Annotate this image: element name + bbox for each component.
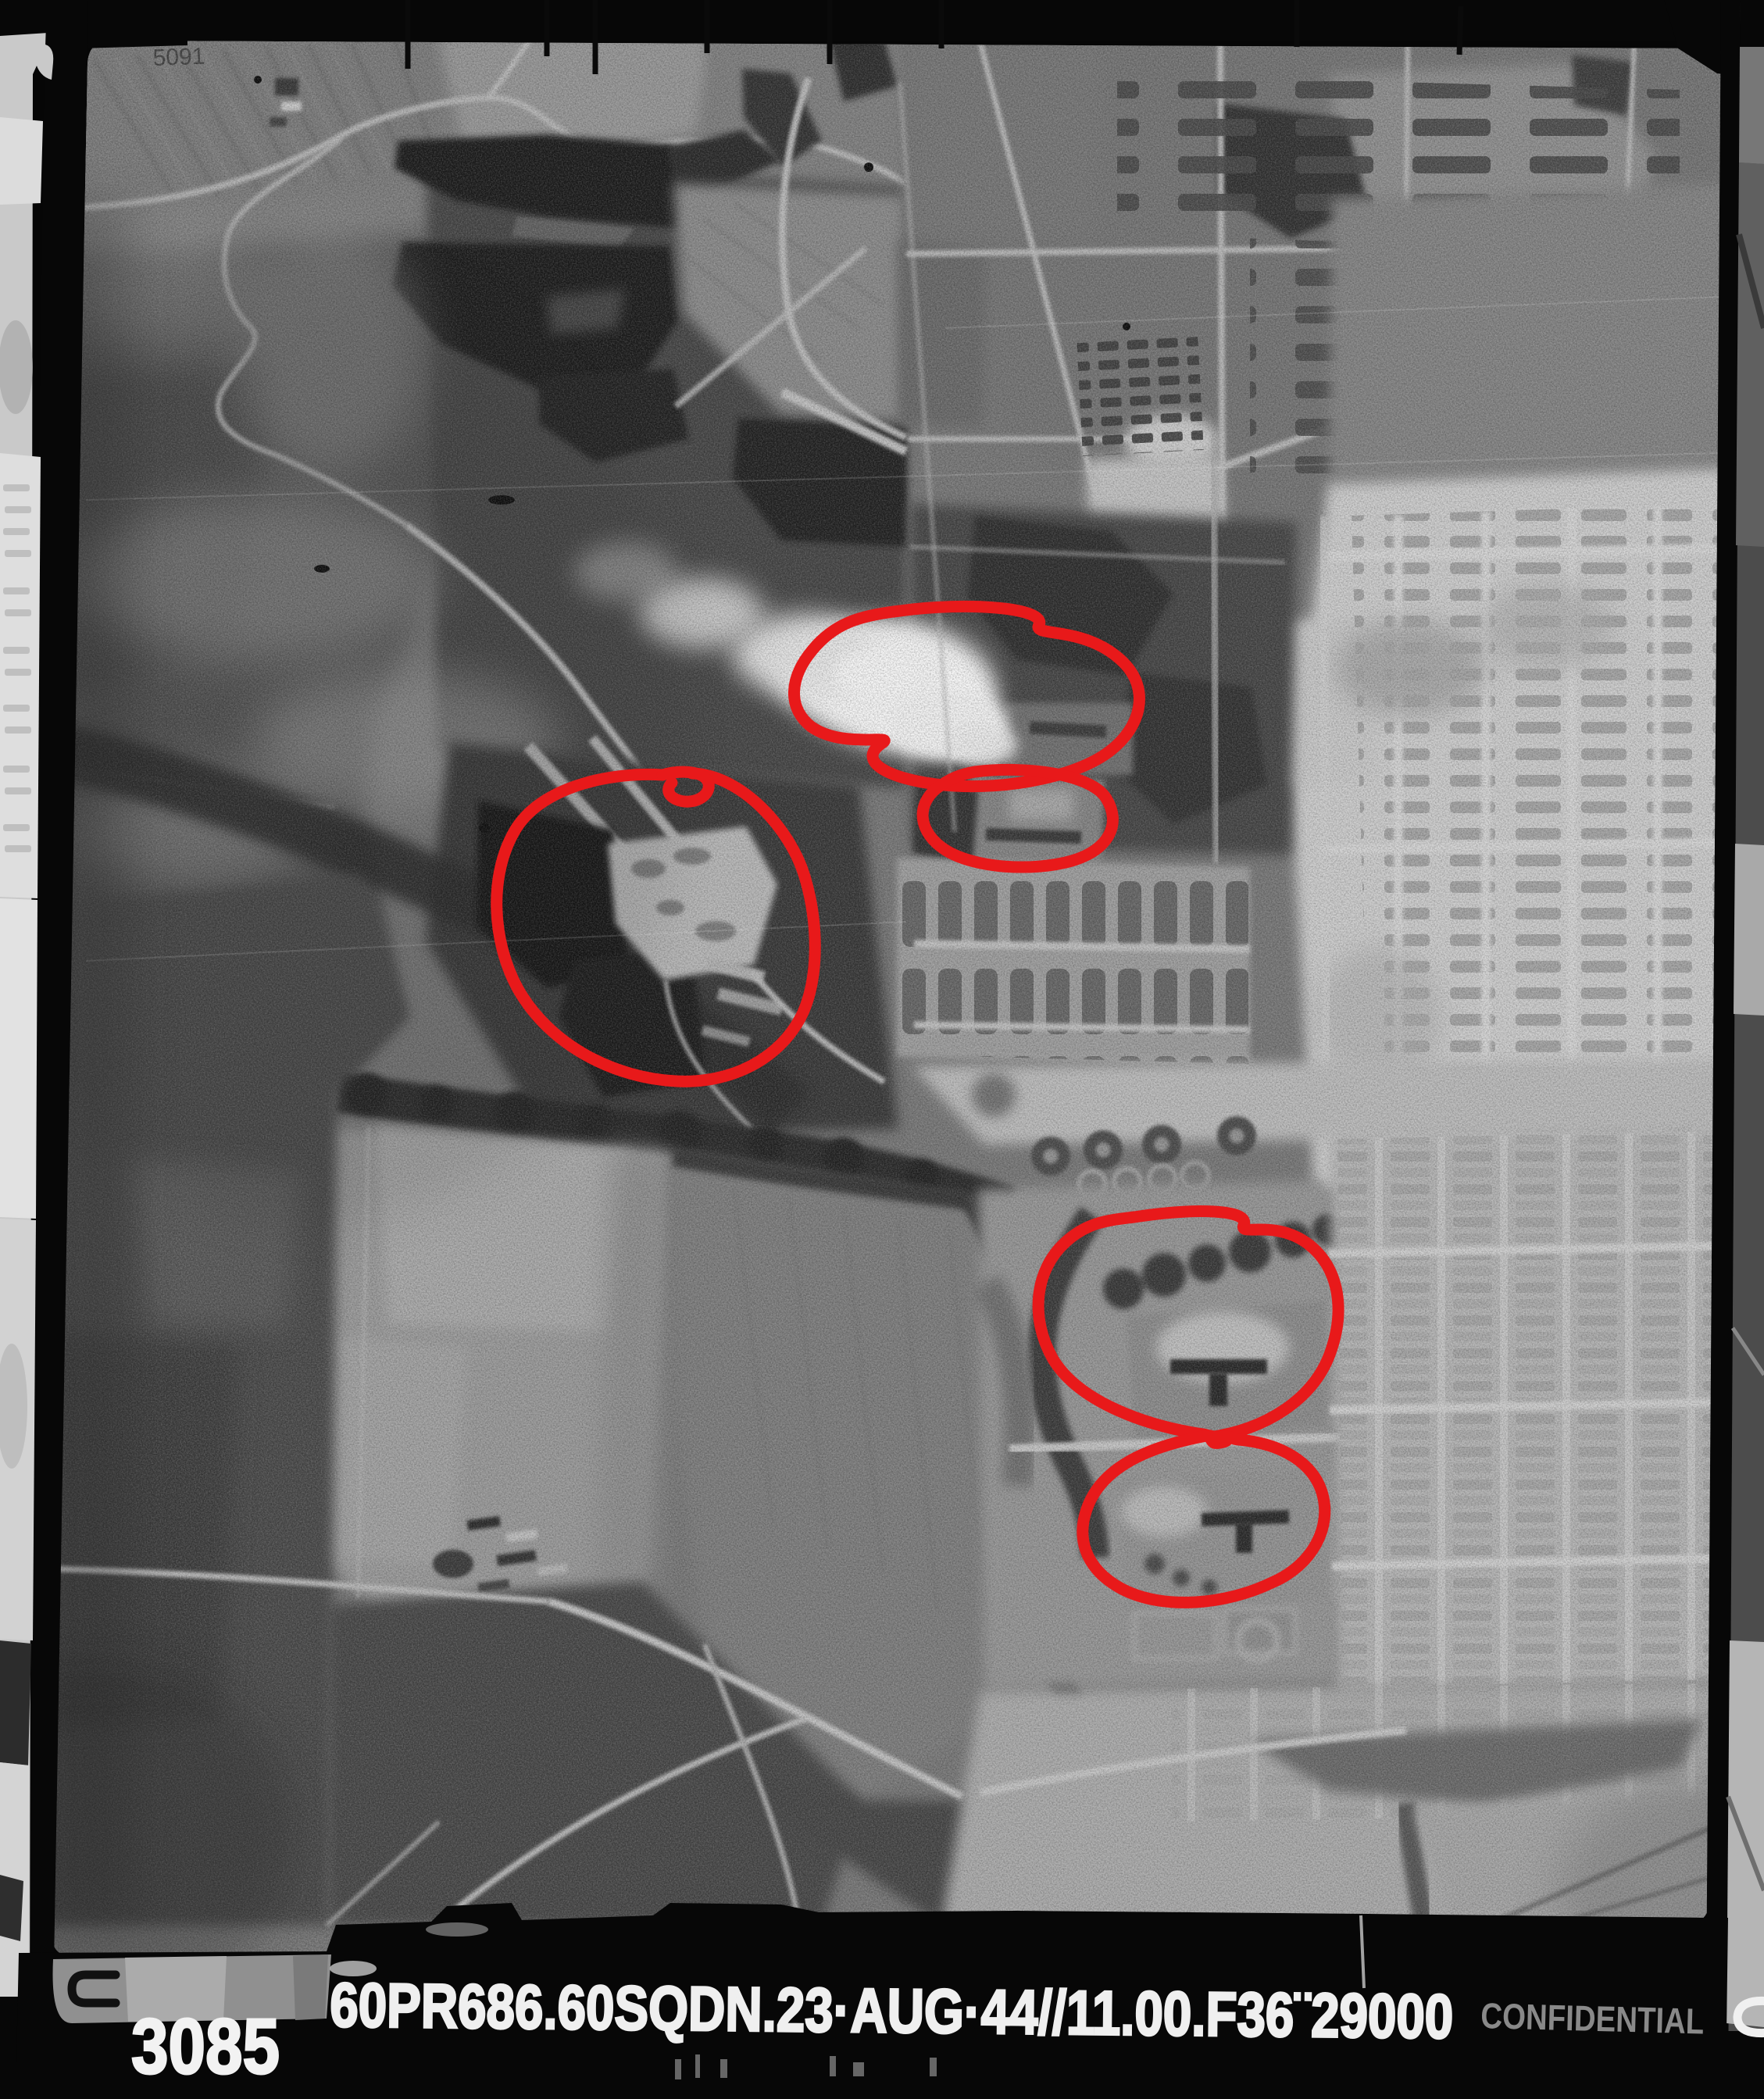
svg-text:3085: 3085 xyxy=(131,2003,280,2090)
svg-text:60PR686.60SQDN.23·AUG·44//11.0: 60PR686.60SQDN.23·AUG·44//11.00.F36¨2900… xyxy=(330,1970,1454,2051)
svg-text:CONFIDENTIAL: CONFIDENTIAL xyxy=(1480,1995,1705,2041)
